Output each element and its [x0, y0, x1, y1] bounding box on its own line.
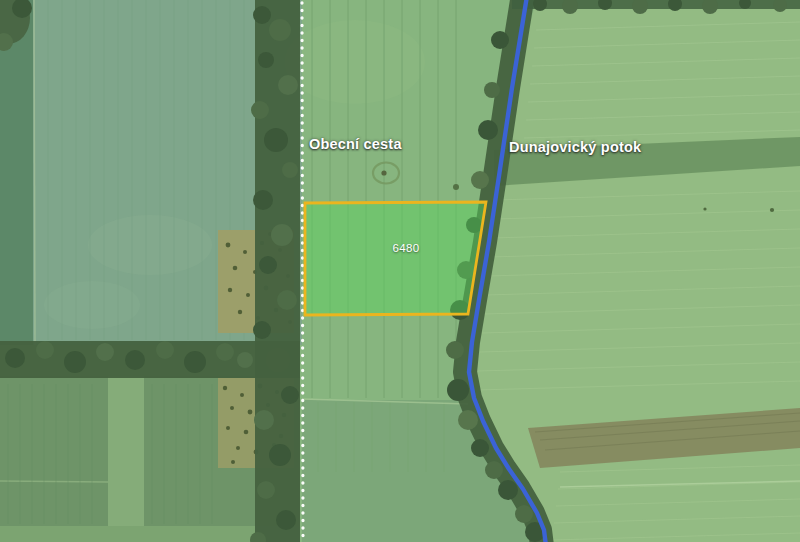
parcel-highlight[interactable]	[305, 202, 486, 315]
map-viewport[interactable]: Obecní cesta Dunajovický potok 6480	[0, 0, 800, 542]
aerial-map[interactable]	[0, 0, 800, 542]
parcel-number-label: 6480	[393, 242, 420, 254]
road-tree-line	[250, 0, 300, 542]
road-label: Obecní cesta	[309, 136, 402, 152]
west-hedge-row	[0, 341, 300, 378]
stream-label: Dunajovický potok	[509, 139, 641, 155]
parcel-fill[interactable]	[305, 202, 486, 315]
